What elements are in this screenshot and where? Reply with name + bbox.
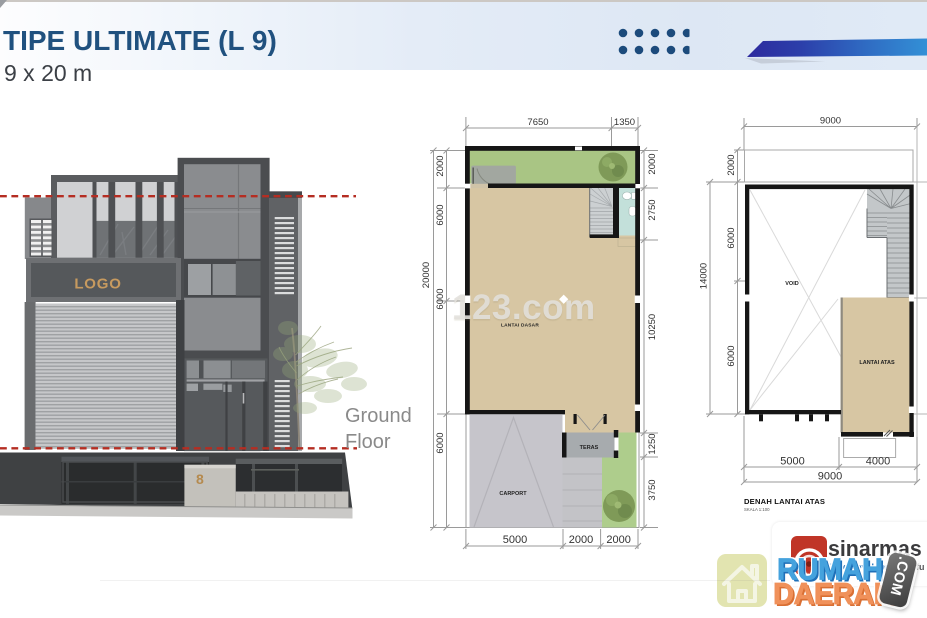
svg-text:6000: 6000 bbox=[435, 432, 446, 453]
svg-text:2000: 2000 bbox=[435, 155, 446, 176]
svg-text:LANTAI ATAS: LANTAI ATAS bbox=[859, 360, 895, 366]
svg-text:6000: 6000 bbox=[435, 288, 446, 309]
svg-text:VOID: VOID bbox=[785, 281, 798, 287]
svg-text:1250: 1250 bbox=[647, 433, 658, 454]
svg-text:2750: 2750 bbox=[647, 199, 658, 220]
svg-text:2000: 2000 bbox=[606, 534, 630, 546]
svg-text:6000: 6000 bbox=[726, 227, 737, 248]
svg-text:9000: 9000 bbox=[818, 471, 842, 483]
svg-text:LOGO: LOGO bbox=[74, 276, 121, 293]
svg-text:2000: 2000 bbox=[726, 154, 737, 175]
svg-text:8: 8 bbox=[196, 471, 204, 487]
svg-text:9000: 9000 bbox=[820, 116, 841, 127]
svg-text:1350: 1350 bbox=[614, 117, 635, 128]
svg-text:20000: 20000 bbox=[421, 262, 432, 288]
svg-text:5000: 5000 bbox=[780, 456, 804, 468]
svg-text:4000: 4000 bbox=[866, 456, 890, 468]
svg-text:3750: 3750 bbox=[647, 479, 658, 500]
svg-text:DENAH LANTAI ATAS: DENAH LANTAI ATAS bbox=[744, 497, 825, 506]
svg-text:TERAS: TERAS bbox=[580, 445, 599, 451]
svg-text:6000: 6000 bbox=[435, 204, 446, 225]
svg-text:SKALA 1:100: SKALA 1:100 bbox=[744, 507, 770, 512]
svg-text:5000: 5000 bbox=[503, 534, 527, 546]
svg-text:7650: 7650 bbox=[527, 117, 548, 128]
svg-text:14000: 14000 bbox=[699, 263, 710, 289]
svg-text:10250: 10250 bbox=[647, 314, 658, 340]
svg-text:2000: 2000 bbox=[569, 534, 593, 546]
svg-text:6000: 6000 bbox=[726, 345, 737, 366]
svg-text:2000: 2000 bbox=[647, 153, 658, 174]
svg-text:CARPORT: CARPORT bbox=[499, 491, 527, 497]
